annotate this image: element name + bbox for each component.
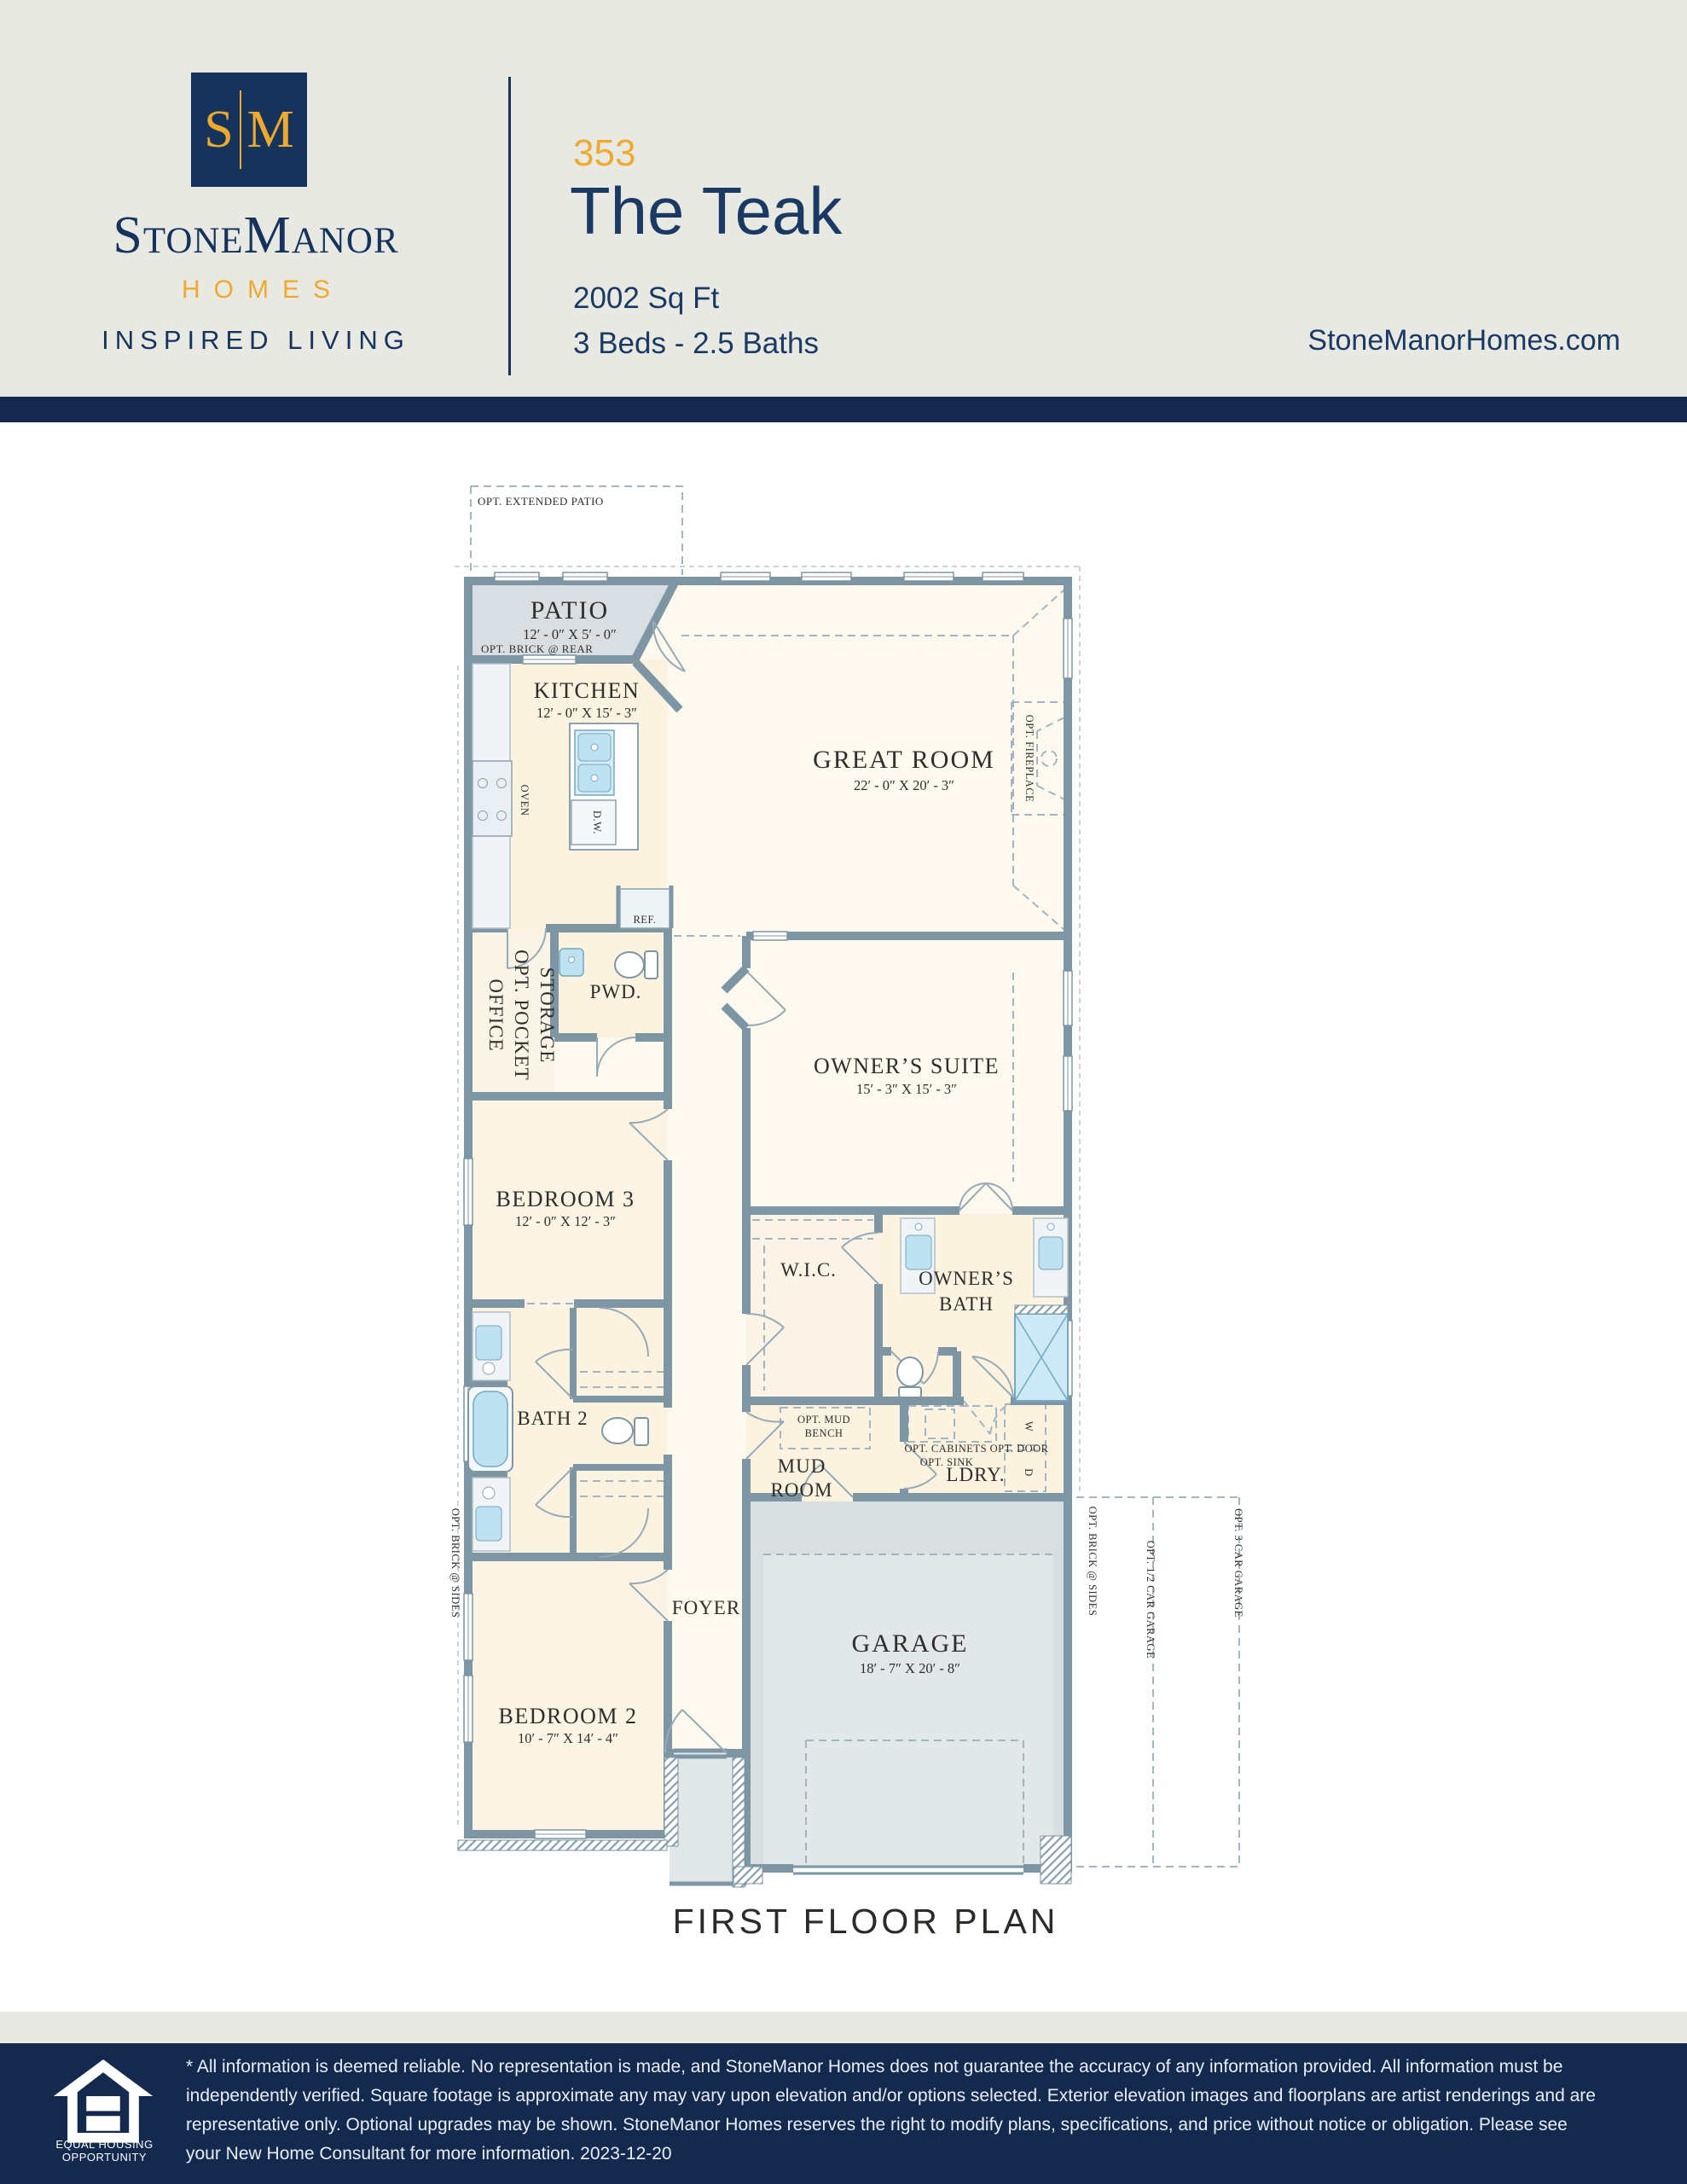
disclaimer-text: * All information is deemed reliable. No…: [186, 2053, 1602, 2169]
label-owners-bath: BATH: [939, 1293, 994, 1315]
equal-housing-logo: [47, 2059, 159, 2145]
label-opt-brick-sides-right: OPT. BRICK @ SIDES: [1087, 1507, 1099, 1617]
bath2-sink-bottom-icon: [476, 1507, 501, 1541]
floor-plan: OPT. EXTENDED PATIO PATIO 12′ - 0″ X 5′ …: [426, 461, 1271, 1911]
footer-gray-strip: [0, 2012, 1687, 2043]
website-url: StoneManorHomes.com: [1109, 326, 1620, 355]
logo-monogram-m: M: [247, 100, 294, 160]
label-office: OFFICE: [485, 979, 507, 1051]
bath2-toilet-icon: [602, 1418, 633, 1443]
label-mud: MUD: [778, 1455, 826, 1477]
label-bedroom2: BEDROOM 2: [498, 1704, 637, 1728]
pwd-toilet-icon: [615, 952, 644, 978]
label-kitchen: KITCHEN: [534, 678, 641, 703]
logo-monogram-s: S: [204, 100, 233, 160]
label-owners-suite: OWNER’S SUITE: [814, 1054, 1000, 1078]
label-patio: PATIO: [530, 596, 609, 624]
stonemanor-logo: S M: [191, 73, 307, 187]
dims-bedroom2: 10′ - 7″ X 14′ - 4″: [518, 1730, 618, 1746]
plan-sqft: 2002 Sq Ft: [573, 283, 719, 313]
label-bedroom3: BEDROOM 3: [496, 1187, 635, 1211]
label-opt-pocket: OPT. POCKET: [511, 950, 532, 1081]
garage-door: [793, 1867, 1023, 1873]
oven-icon: [472, 761, 512, 836]
label-wic: W.I.C.: [780, 1259, 837, 1281]
label-opt-brick-rear: OPT. BRICK @ REAR: [481, 642, 593, 655]
label-ref: REF.: [633, 914, 656, 926]
label-room: ROOM: [770, 1479, 832, 1501]
dims-patio: 12′ - 0″ X 5′ - 0″: [523, 626, 617, 642]
label-opt-half-car-garage: OPT. 1/2 CAR GARAGE: [1145, 1541, 1157, 1658]
label-opt-cabinets-door: OPT. CABINETS OPT. DOOR: [904, 1443, 1048, 1455]
label-storage: STORAGE: [536, 967, 558, 1064]
page-title: The Teak: [570, 177, 842, 244]
owners-sink-left-icon: [906, 1235, 931, 1269]
label-opt-3-car-garage: OPT. 3 CAR GARAGE: [1232, 1508, 1244, 1618]
label-pwd: PWD.: [590, 981, 642, 1002]
label-dryer: D: [1023, 1468, 1035, 1477]
brand-name: StoneManor: [51, 209, 461, 262]
bath2-sink-top-icon: [476, 1326, 501, 1360]
label-ldry: LDRY.: [946, 1464, 1005, 1485]
dims-kitchen: 12′ - 0″ X 15′ - 3″: [536, 705, 637, 721]
label-opt-fireplace: OPT. FIREPLACE: [1023, 715, 1035, 803]
label-dw: D.W.: [591, 810, 603, 834]
brand-tagline: INSPIRED LIVING: [51, 327, 461, 353]
dims-bedroom3: 12′ - 0″ X 12′ - 3″: [515, 1213, 616, 1229]
eho-caption: EQUAL HOUSING OPPORTUNITY: [34, 2138, 175, 2164]
plan-title: FIRST FLOOR PLAN: [426, 1904, 1305, 1939]
label-washer: W: [1023, 1421, 1035, 1432]
owners-sink-right-icon: [1039, 1237, 1063, 1269]
label-opt-mud: OPT. MUD: [797, 1414, 850, 1426]
header-divider: [508, 77, 511, 375]
label-bath2: BATH 2: [517, 1408, 588, 1429]
label-garage: GARAGE: [852, 1629, 969, 1658]
brand-homes: HOMES: [51, 277, 461, 303]
label-oven: OVEN: [519, 785, 530, 816]
owners-toilet-icon: [897, 1357, 923, 1386]
label-foyer: FOYER: [672, 1597, 740, 1618]
dims-great-room: 22′ - 0″ X 20′ - 3″: [854, 777, 954, 793]
label-great-room: GREAT ROOM: [813, 746, 995, 774]
dims-garage: 18′ - 7″ X 20′ - 8″: [860, 1660, 960, 1676]
label-opt-brick-sides-left: OPT. BRICK @ SIDES: [449, 1508, 461, 1618]
logo-divider: [240, 90, 241, 169]
plan-number: 353: [573, 135, 635, 172]
opt-garage-outline: [1076, 1497, 1239, 1867]
header: S M StoneManor HOMES INSPIRED LIVING 353…: [0, 0, 1687, 397]
label-owners: OWNER’S: [919, 1268, 1014, 1289]
label-opt-extended-patio: OPT. EXTENDED PATIO: [478, 495, 604, 508]
dims-owners-suite: 15′ - 3″ X 15′ - 3″: [856, 1081, 957, 1097]
header-rule: [0, 397, 1687, 422]
footer: EQUAL HOUSING OPPORTUNITY * All informat…: [0, 2043, 1687, 2184]
label-bench: BENCH: [805, 1427, 843, 1439]
plan-beds-baths: 3 Beds - 2.5 Baths: [573, 328, 819, 358]
